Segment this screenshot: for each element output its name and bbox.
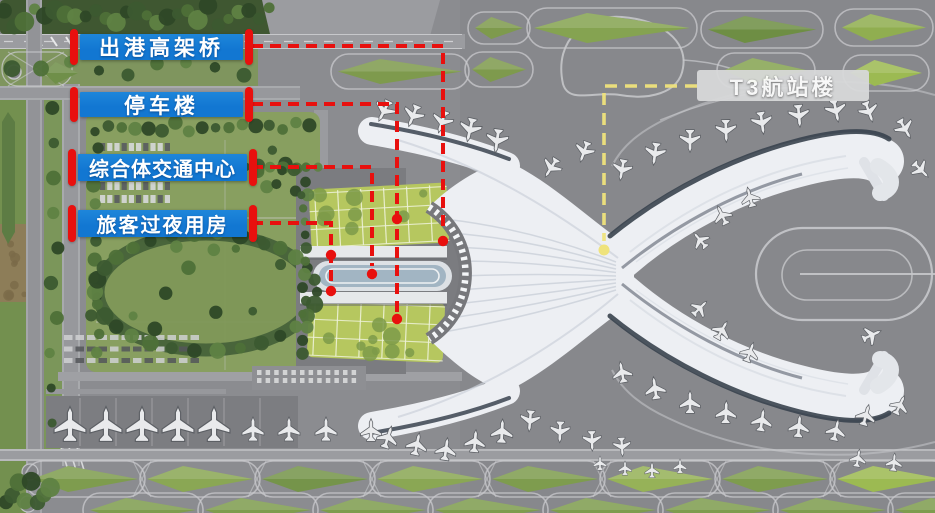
callout-label: 停车楼 xyxy=(124,90,199,120)
t3-terminal-tag: T3航站楼 xyxy=(697,70,869,101)
t3-terminal-label: T3航站楼 xyxy=(730,70,837,102)
callout-bracket-right xyxy=(245,87,253,122)
callout-transport-center: 综合体交通中心 xyxy=(78,154,247,181)
callout-bracket-left xyxy=(70,29,78,65)
callout-overnight-rooms: 旅客过夜用房 xyxy=(78,210,247,237)
callout-bracket-right xyxy=(245,29,253,65)
callout-departure-viaduct: 出港高架桥 xyxy=(80,34,243,60)
callout-bracket-left xyxy=(68,205,76,242)
airport-masterplan-rendering: 出港高架桥 停车楼 综合体交通中心 旅客过夜用房 T3航站楼 xyxy=(0,0,935,513)
callout-bracket-left xyxy=(68,149,76,186)
callout-parking-building: 停车楼 xyxy=(80,92,243,117)
callout-bracket-right xyxy=(249,149,257,186)
callout-label: 旅客过夜用房 xyxy=(97,209,229,238)
callout-bracket-left xyxy=(70,87,78,122)
callout-label: 综合体交通中心 xyxy=(89,153,236,182)
callout-bracket-right xyxy=(249,205,257,242)
callout-label: 出港高架桥 xyxy=(99,32,224,62)
